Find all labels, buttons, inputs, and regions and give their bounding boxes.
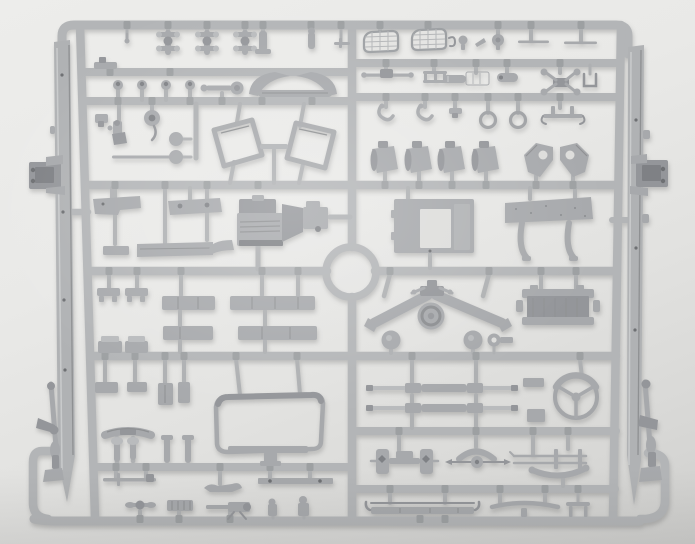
axle-assembly-1: [366, 383, 518, 393]
thin-rod-2: [564, 42, 597, 45]
ski-rods: [510, 449, 586, 469]
cylinder-sm: [443, 75, 466, 83]
seat-f1: [98, 336, 122, 353]
seat-f2: [125, 336, 148, 353]
post-part-2: [308, 28, 315, 50]
axle-thin: [361, 69, 414, 78]
door-frame-right: [287, 123, 334, 168]
bed-slat-3: [163, 326, 213, 340]
pin-part: [125, 33, 130, 44]
carriage-wheel-2: [464, 331, 483, 350]
radiator: [516, 285, 600, 325]
fender-slat: [258, 90, 332, 97]
right-chassis-rail: [627, 45, 650, 505]
valve-part: [108, 120, 128, 145]
capsule: [497, 73, 518, 82]
fig-1: [268, 499, 277, 517]
tow-balls: [169, 132, 183, 164]
cross-frame: [423, 71, 447, 83]
cap-knob-row: [113, 80, 195, 90]
tiny-hook: [449, 37, 455, 46]
long-bar-bottom: [366, 502, 479, 514]
thin-rod-1: [518, 41, 549, 44]
carriage-wheel-1: [382, 331, 401, 350]
long-rod: [112, 156, 172, 159]
g-rod: [103, 473, 156, 486]
ring-part: [326, 247, 376, 297]
u-joint-shaft-3: [233, 30, 257, 55]
panel-slat: [103, 246, 129, 255]
sprue-photo: [0, 0, 695, 544]
angle-bracket-2: [560, 143, 589, 177]
roof-panel: [505, 197, 593, 261]
axle-assembly-2: [366, 403, 518, 413]
lamp-bucket-3: [438, 141, 466, 173]
bed-plate: [391, 199, 474, 253]
bed-slat-4: [238, 326, 317, 340]
g-strip: [258, 478, 333, 484]
bed-slat-1: [162, 296, 215, 310]
lamp-bucket-1: [371, 141, 399, 173]
g-carb: [204, 483, 242, 492]
post-2: [182, 435, 194, 463]
mesh-panel-1: [364, 31, 398, 52]
mesh-panel-2: [412, 29, 446, 50]
mushroom-1: [459, 36, 468, 51]
clip-sm: [95, 114, 108, 127]
bracket-on-runner: [94, 57, 117, 69]
tray-plate: [168, 198, 222, 215]
bed-slat-2: [230, 296, 315, 310]
frame-link-bar: [260, 144, 288, 149]
angle-bracket-1: [524, 143, 553, 177]
hang-tall-1: [158, 383, 173, 405]
hang-rect-1: [95, 382, 118, 393]
plate-sm-2: [527, 409, 545, 422]
ribbed-cylinder: [167, 500, 193, 511]
right-spare-axle: [638, 380, 662, 483]
sprue-scene: [0, 0, 695, 544]
rack-bracket: [542, 106, 585, 124]
u-channel: [584, 74, 596, 86]
plate-sm-1: [523, 378, 544, 387]
left-rail-connector: [29, 155, 65, 195]
post-oval-1: [111, 437, 123, 462]
bracket-e2: [125, 288, 148, 302]
prop-part: [125, 501, 156, 510]
hang-rect-2: [127, 382, 147, 392]
lamp-bucket-4: [472, 141, 500, 173]
door-frame-left: [214, 120, 262, 166]
fig-2: [298, 496, 309, 516]
arrow-rod: [445, 456, 511, 468]
post-1: [161, 435, 173, 463]
u-joint-shaft-2: [195, 30, 219, 55]
backrest: [105, 429, 151, 436]
wing-sm: [475, 38, 486, 47]
n-bracket: [566, 502, 590, 517]
post-part-1: [255, 31, 271, 54]
key-part: [488, 334, 514, 347]
panel-wide: [137, 242, 213, 257]
bracket-e1: [97, 288, 120, 302]
lamp-bucket-2: [405, 141, 433, 173]
h-frame: [371, 449, 438, 474]
windshield-frame: [216, 395, 323, 466]
post-oval-2: [127, 437, 139, 460]
engine-block: [237, 195, 328, 246]
mushroom-2: [492, 34, 504, 50]
sprue-runners: [33, 25, 665, 521]
tiny-tbar: [334, 38, 350, 48]
u-joint-shaft-1: [156, 30, 180, 55]
floor-plate: [93, 196, 141, 215]
hang-tall-2: [178, 382, 190, 403]
clamp-sm: [449, 108, 462, 118]
pulley: [144, 110, 160, 140]
shallow-arc: [492, 503, 558, 517]
steering-wheel: [555, 375, 597, 418]
sprue: [29, 21, 668, 523]
